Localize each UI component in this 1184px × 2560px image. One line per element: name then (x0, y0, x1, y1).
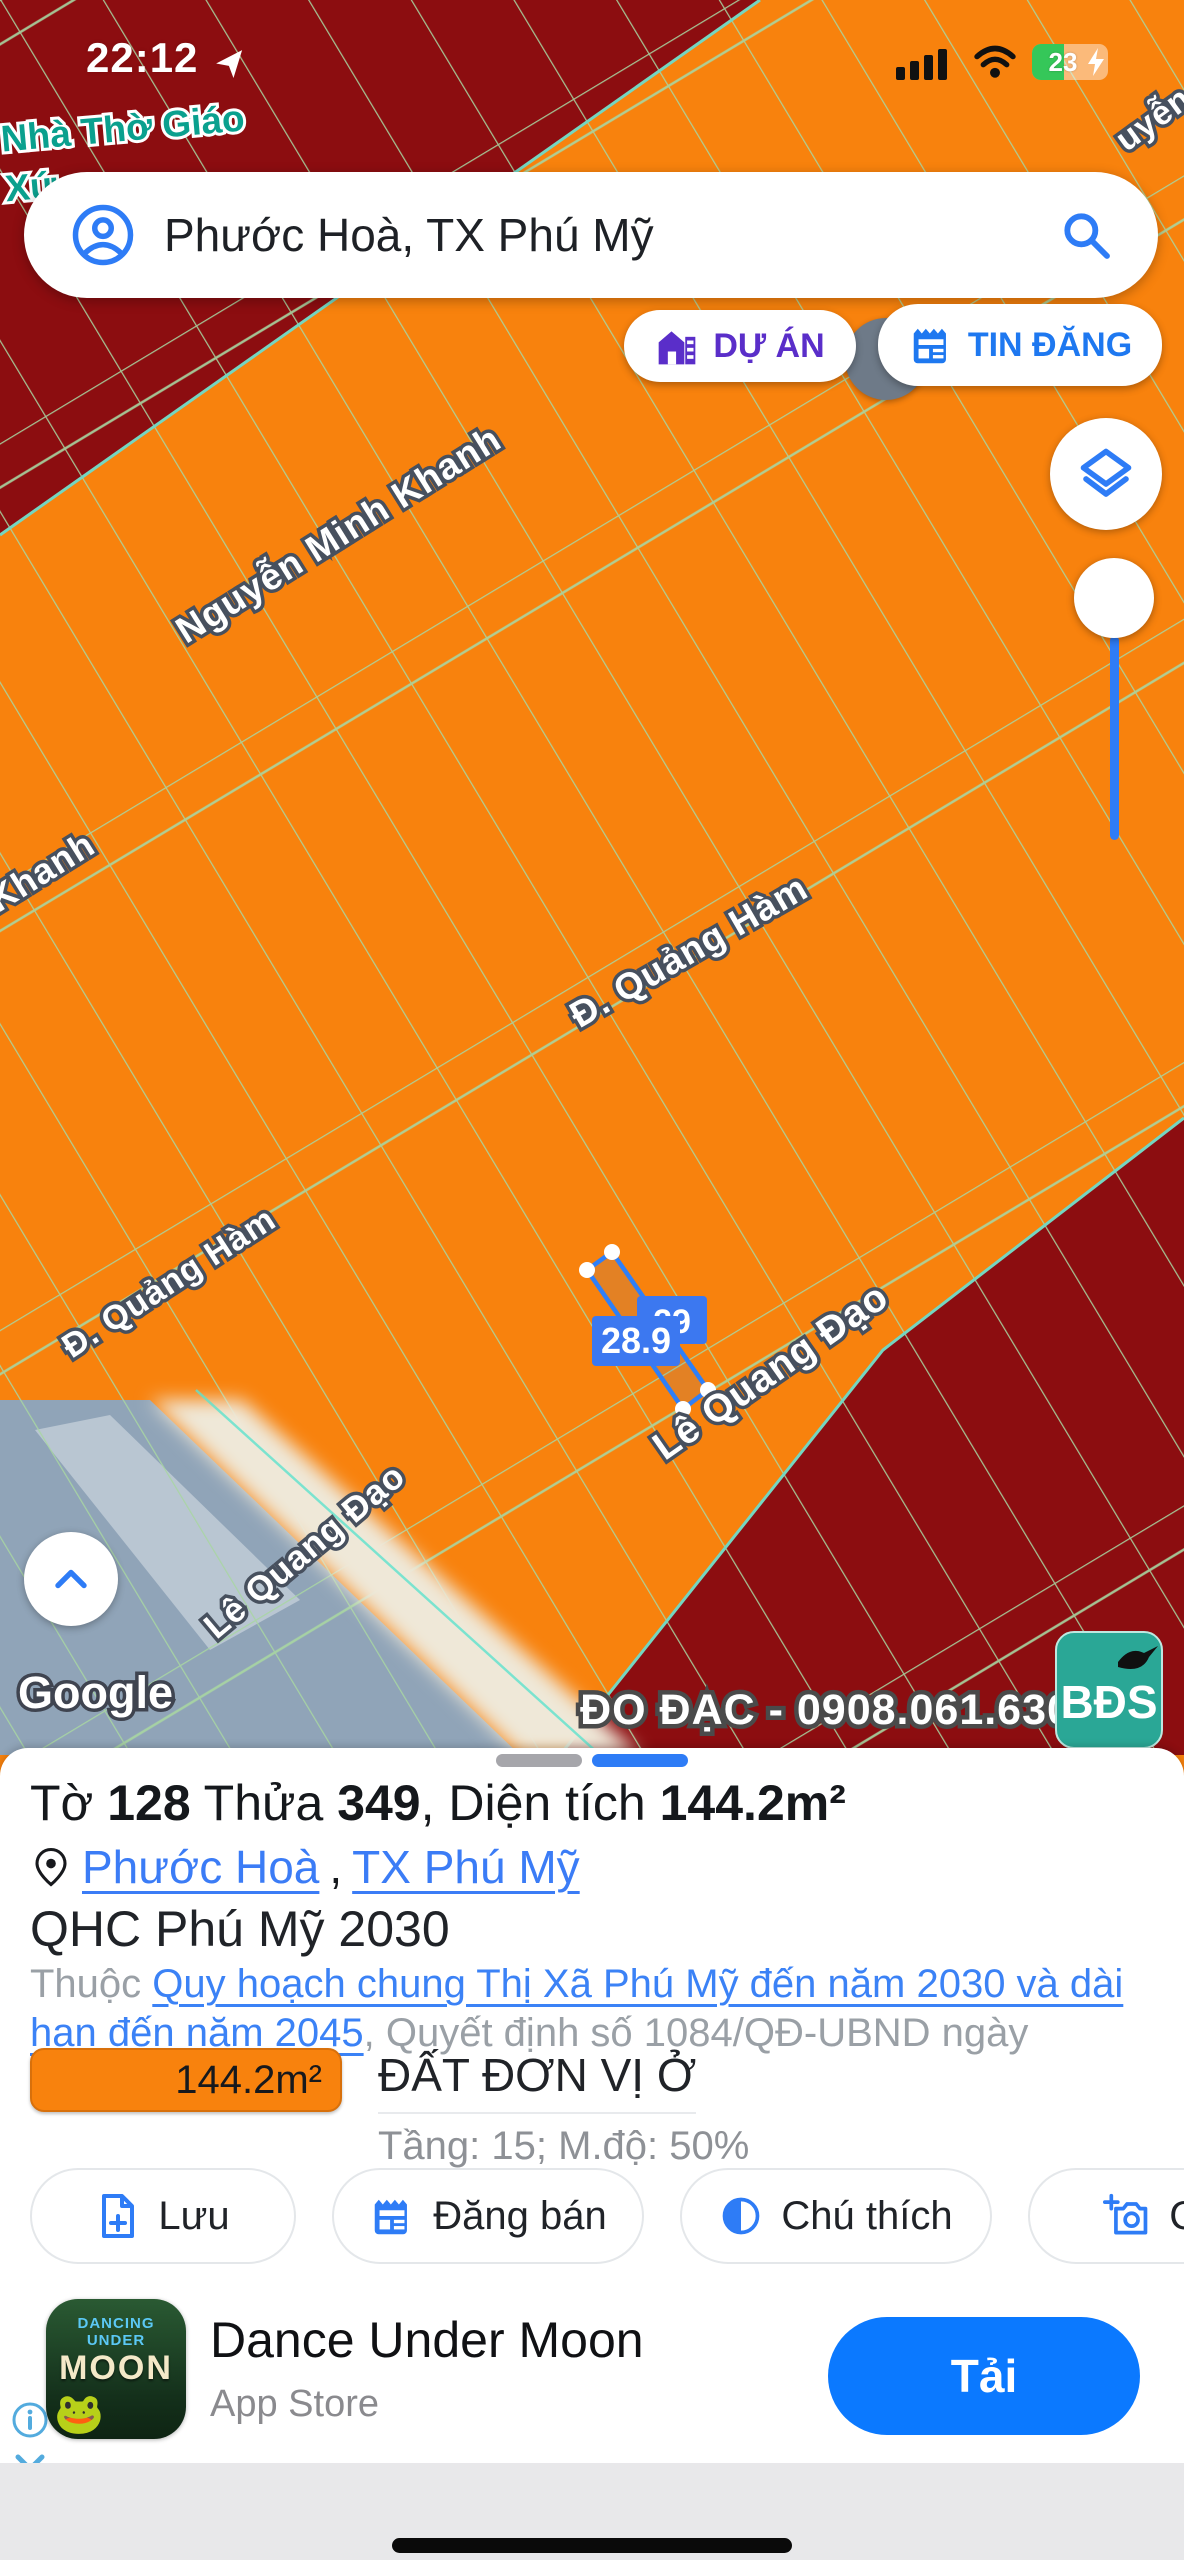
save-button[interactable]: Lưu (30, 2168, 296, 2264)
map-layers-button[interactable] (1050, 418, 1162, 530)
bottom-safe-area (0, 2463, 1184, 2560)
zoom-slider-track[interactable] (1110, 636, 1119, 840)
ad-info-icon[interactable] (10, 2400, 50, 2440)
sheet-number: 128 (107, 1775, 190, 1831)
post-listing-label: Đăng bán (433, 2194, 606, 2239)
listings-button-label: TIN ĐĂNG (968, 326, 1132, 365)
zoom-slider-thumb[interactable] (1074, 558, 1154, 638)
page-dot-active[interactable] (592, 1754, 688, 1767)
town-link[interactable]: TX Phú Mỹ (352, 1840, 580, 1894)
bds-logo: BĐS (1056, 1632, 1162, 1748)
plan-name: QHC Phú Mỹ 2030 (30, 1900, 450, 1958)
zoning-legend: 144.2m² ĐẤT ĐƠN VỊ Ở Tầng: 15; M.độ: 50% (30, 2048, 749, 2169)
parcel-vertex[interactable] (579, 1262, 595, 1278)
measure-front-text: 28.9 (601, 1320, 671, 1361)
battery-indicator: 23 (1032, 44, 1108, 80)
ad-app-store-label: App Store (210, 2383, 379, 2426)
surveyor-watermark: ĐO ĐẠC - 0908.061.630 (580, 1686, 1072, 1734)
parcel-number: 349 (337, 1775, 420, 1831)
account-icon[interactable] (70, 202, 136, 268)
charging-bolt-icon (1086, 48, 1106, 76)
ad-icon-text-main: MOON (46, 2349, 186, 2388)
ward-link[interactable]: Phước Hoà (82, 1840, 319, 1894)
camera-plus-icon (1103, 2192, 1151, 2240)
listings-button[interactable]: TIN ĐĂNG (878, 304, 1162, 386)
ad-app-icon[interactable]: DANCING UNDER MOON 🐸 (46, 2299, 186, 2439)
file-plus-icon (96, 2192, 140, 2240)
capture-label: Chụ (1169, 2194, 1184, 2239)
location-row: Phước Hoà, TX Phú Mỹ (30, 1840, 580, 1894)
sheet-page-indicator[interactable] (0, 1754, 1184, 1767)
news-icon (908, 322, 954, 368)
news-icon (369, 2193, 415, 2239)
search-input[interactable]: Phước Hoà, TX Phú Mỹ (164, 208, 1058, 262)
parcel-title: Tờ 128 Thửa 349, Diện tích 144.2m² (30, 1774, 846, 1832)
app-screen: 29 28.9 Nguyễn Minh Khanh Khanh Đ. Quảng… (0, 0, 1184, 2560)
save-button-label: Lưu (158, 2194, 229, 2239)
search-bar[interactable]: Phước Hoà, TX Phú Mỹ (24, 172, 1158, 298)
clock: 22:12 (86, 34, 198, 82)
action-buttons-row: Lưu Đăng bán Chú thích (30, 2168, 1184, 2264)
legend-toggle-label: Chú thích (781, 2194, 952, 2239)
capture-button[interactable]: Chụ (1028, 2168, 1184, 2264)
project-house-icon (655, 324, 699, 368)
home-indicator[interactable] (392, 2538, 792, 2553)
map-pin-icon (30, 1846, 72, 1888)
land-type-label: ĐẤT ĐƠN VỊ Ở (378, 2048, 696, 2114)
projects-button[interactable]: DỰ ÁN (624, 310, 856, 382)
chevron-up-icon (45, 1553, 97, 1605)
page-dot-inactive[interactable] (496, 1754, 582, 1767)
zone-color-chip: 144.2m² (30, 2048, 342, 2112)
frog-character: 🐸 (54, 2390, 104, 2437)
area-value: 144.2m² (660, 1775, 846, 1831)
ad-app-title: Dance Under Moon (210, 2311, 644, 2369)
battery-percent: 23 (1032, 44, 1094, 80)
download-button[interactable]: Tải (828, 2317, 1140, 2435)
ad-icon-text-top: DANCING UNDER (46, 2315, 186, 2349)
search-icon[interactable] (1058, 207, 1114, 263)
expand-sheet-button[interactable] (24, 1532, 118, 1626)
google-logo: Google (18, 1667, 173, 1718)
layers-icon (1076, 444, 1136, 504)
projects-button-label: DỰ ÁN (713, 327, 824, 366)
signal-strength-icon (896, 46, 958, 80)
bds-logo-text: BĐS (1060, 1676, 1157, 1728)
contrast-icon (719, 2194, 763, 2238)
parcel-info-sheet[interactable]: Tờ 128 Thửa 349, Diện tích 144.2m² Phước… (0, 1748, 1184, 2285)
location-arrow-icon (216, 44, 250, 78)
post-listing-button[interactable]: Đăng bán (332, 2168, 644, 2264)
wifi-icon (972, 44, 1018, 80)
legend-toggle-button[interactable]: Chú thích (680, 2168, 992, 2264)
ad-banner[interactable]: DANCING UNDER MOON 🐸 Dance Under Moon Ap… (0, 2285, 1184, 2463)
land-parameters: Tầng: 15; M.độ: 50% (378, 2124, 749, 2169)
parcel-vertex[interactable] (604, 1244, 620, 1260)
